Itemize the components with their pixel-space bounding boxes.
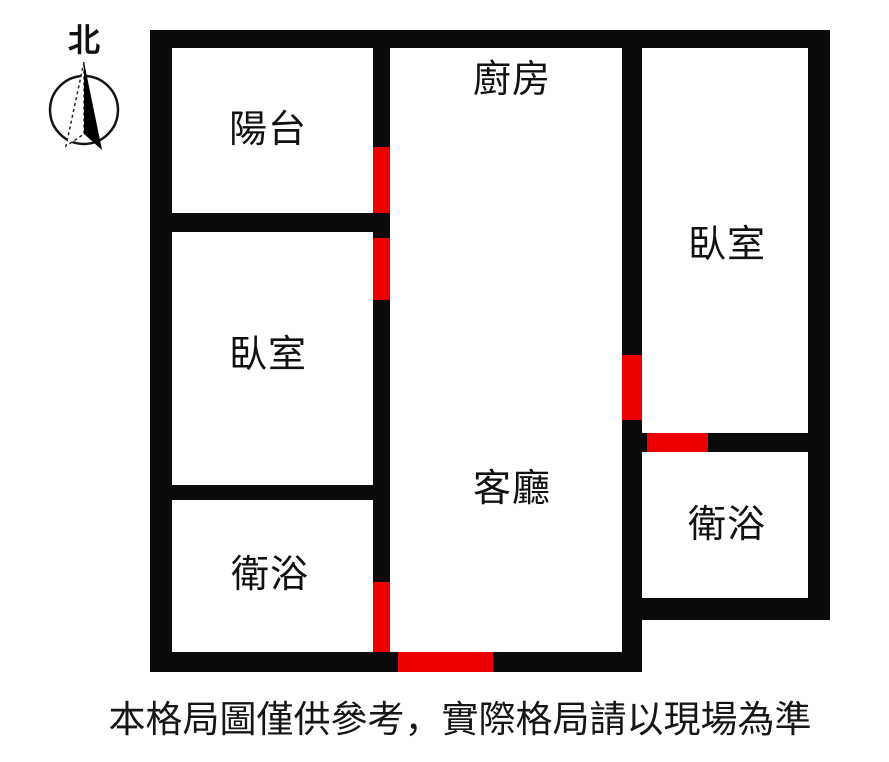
room-label-kitchen: 廚房 [473, 61, 551, 99]
room-label-living-room: 客廳 [473, 470, 551, 508]
wall-outer-right [808, 30, 830, 620]
wall-bath-right-bottom [622, 598, 830, 620]
wall-divider-balcony-bedroom [150, 213, 390, 232]
door-bathroom-left [373, 582, 390, 652]
wall-outer-top [150, 30, 830, 48]
compass-icon [44, 58, 124, 154]
door-bathroom-right [647, 433, 708, 452]
compass-north-label: 北 [42, 24, 126, 56]
door-balcony [373, 147, 390, 213]
wall-wall-center-left [373, 48, 390, 652]
room-label-bathroom-left: 衛浴 [231, 556, 309, 594]
wall-divider-bedroom-bath-left [150, 485, 390, 500]
wall-bottom-main [150, 652, 642, 672]
door-bedroom-right [622, 355, 642, 420]
wall-outer-left [150, 30, 172, 672]
compass: 北 [42, 24, 126, 159]
wall-wall-center-right [622, 48, 642, 652]
room-label-bedroom-left: 臥室 [229, 336, 307, 374]
door-entrance [398, 652, 493, 672]
door-bedroom-left [373, 238, 390, 300]
disclaimer-text: 本格局圖僅供參考，實際格局請以現場為準 [80, 698, 840, 742]
room-label-bathroom-right: 衛浴 [688, 506, 766, 544]
floorplan-canvas: 北 陽台廚房臥室臥室客廳衛浴衛浴 本格局圖僅供參考，實際格局請以現場為準 [0, 0, 889, 762]
room-label-balcony: 陽台 [229, 111, 307, 149]
room-label-bedroom-right: 臥室 [688, 226, 766, 264]
